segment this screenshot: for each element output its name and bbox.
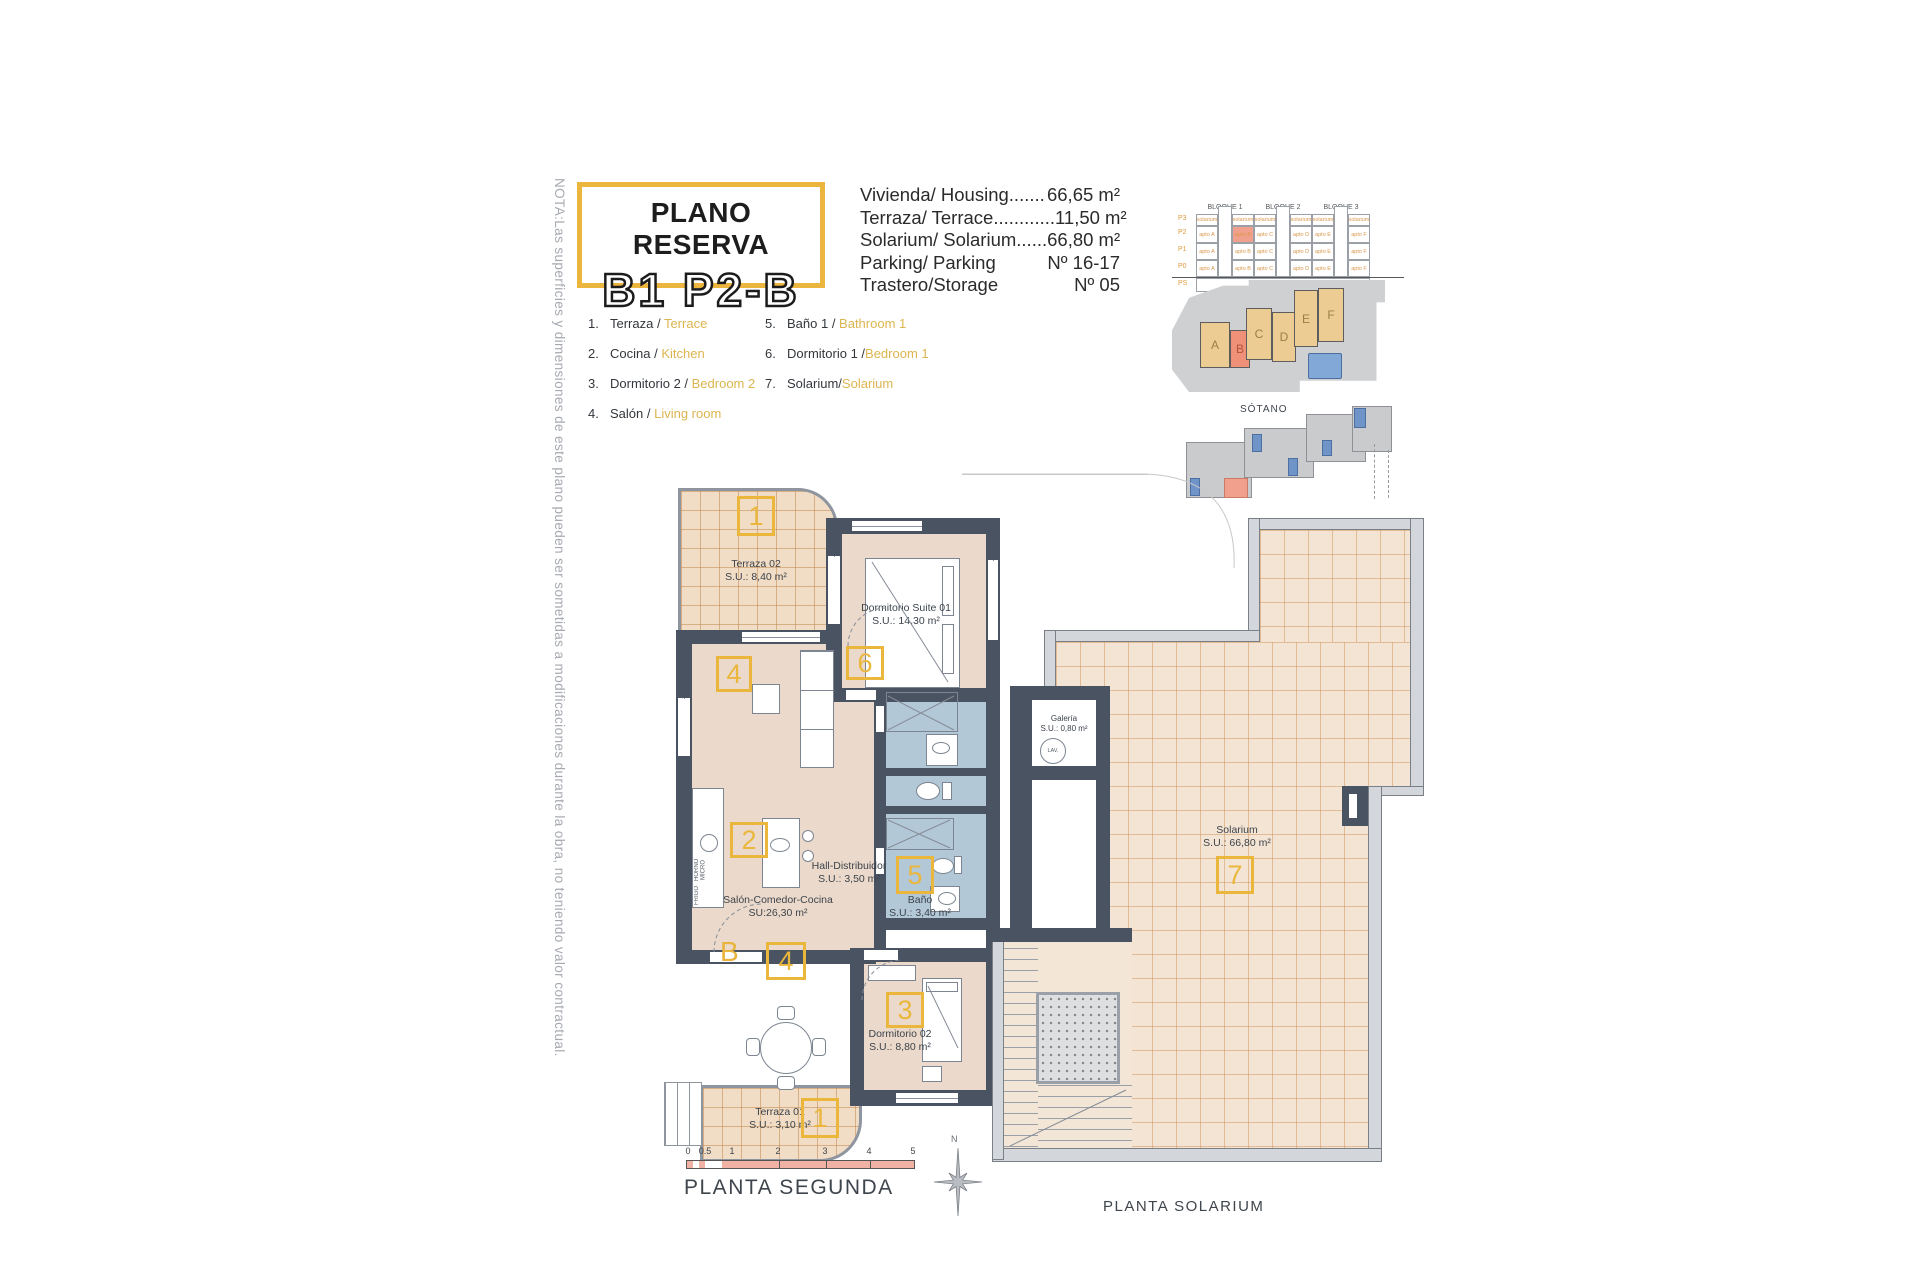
- door-arc: [714, 904, 762, 952]
- door-arc: [862, 960, 902, 1000]
- door-arc: [848, 608, 886, 646]
- bed-crease: [928, 986, 958, 1048]
- shower-cross: [888, 696, 954, 730]
- bed-crease: [872, 562, 948, 682]
- stair-diagonal: [1010, 1090, 1126, 1146]
- site-curve: [962, 474, 1234, 568]
- lineart-overlay: [0, 0, 1920, 1280]
- north-star: [934, 1148, 982, 1216]
- shower-cross: [888, 820, 950, 848]
